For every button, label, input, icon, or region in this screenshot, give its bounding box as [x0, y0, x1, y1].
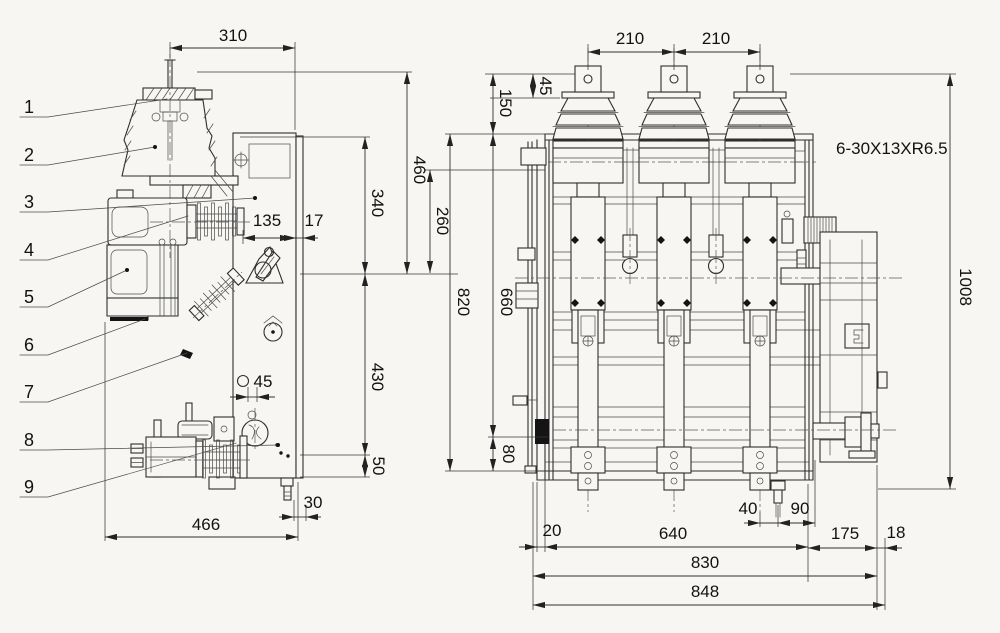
upper-bushing [122, 60, 238, 198]
dim-30: 30 [304, 493, 323, 512]
technical-drawing: 310 460 340 135 17 430 45 50 30 466 210 … [0, 0, 1000, 633]
mounting-slot-note: 6-30X13XR6.5 [836, 139, 948, 158]
contact-blade [110, 317, 148, 321]
callout-3: 3 [24, 192, 34, 212]
dim-150: 150 [496, 89, 515, 117]
left-linkage [513, 142, 549, 473]
side-frame-panel [233, 133, 296, 478]
front-view [513, 48, 905, 517]
dim-175: 175 [831, 524, 859, 543]
lower-mechanism-box [107, 239, 178, 321]
callout-2: 2 [24, 145, 34, 165]
dim-40: 40 [739, 499, 758, 518]
callout-5: 5 [24, 287, 34, 307]
trip-latch [180, 349, 193, 359]
callout-7: 7 [24, 382, 34, 402]
callout-1: 1 [24, 97, 34, 117]
dim-820: 820 [454, 288, 473, 316]
dim-340: 340 [368, 189, 387, 217]
shaft-knob [878, 372, 887, 388]
upper-mechanism-box [108, 190, 187, 245]
dim-20: 20 [543, 521, 562, 540]
dim-640: 640 [659, 524, 687, 543]
pole-2 [639, 48, 709, 512]
dim-310: 310 [219, 26, 247, 45]
dim-830: 830 [691, 553, 719, 572]
dim-460: 460 [410, 156, 429, 184]
upper-insulator [187, 203, 244, 240]
dim-260: 260 [433, 207, 452, 235]
dim-848: 848 [691, 582, 719, 601]
operating-mechanism [781, 211, 887, 462]
dim-18: 18 [887, 523, 906, 542]
drawing-sheet: 310 460 340 135 17 430 45 50 30 466 210 … [0, 0, 1000, 633]
side-view [107, 54, 303, 500]
dim-1008: 1008 [956, 268, 975, 306]
callout-4: 4 [24, 240, 34, 260]
dim-90: 90 [791, 499, 810, 518]
dim-210-right: 210 [702, 29, 730, 48]
dim-135: 135 [253, 211, 281, 230]
callout-8: 8 [24, 430, 34, 450]
dim-210-left: 210 [616, 29, 644, 48]
dim-80: 80 [499, 445, 518, 464]
dim-430: 430 [368, 363, 387, 391]
dim-45-hole: 45 [254, 372, 273, 391]
dim-50: 50 [369, 457, 388, 476]
dim-660: 660 [497, 288, 516, 316]
dim-17: 17 [305, 211, 324, 230]
callout-9: 9 [24, 477, 34, 497]
pole-1 [553, 48, 623, 512]
callout-6: 6 [24, 335, 34, 355]
dim-466: 466 [192, 515, 220, 534]
dim-45-terminal: 45 [536, 77, 555, 96]
